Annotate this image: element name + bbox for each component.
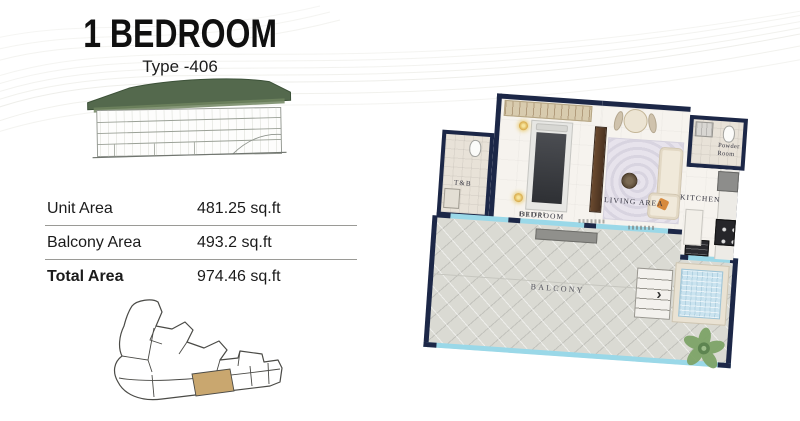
total-area-value: 974.46 sq.ft bbox=[197, 268, 357, 286]
pool-water bbox=[678, 269, 723, 320]
stove-icon bbox=[714, 219, 736, 246]
total-area-label: Total Area bbox=[47, 268, 197, 286]
building-illustration bbox=[84, 74, 296, 162]
pillow-icon bbox=[536, 123, 568, 132]
floorplate-key-plan bbox=[92, 296, 292, 416]
balcony-area-label: Balcony Area bbox=[47, 234, 197, 252]
area-table: Unit Area 481.25 sq.ft Balcony Area 493.… bbox=[45, 192, 357, 293]
area-row-unit: Unit Area 481.25 sq.ft bbox=[45, 192, 357, 226]
balcony-area-value: 493.2 sq.ft bbox=[197, 234, 357, 252]
page-title-text: 1 BEDROOM bbox=[83, 14, 277, 54]
area-row-total: Total Area 974.46 sq.ft bbox=[45, 260, 357, 293]
plunge-pool-icon bbox=[672, 262, 730, 326]
bed-icon bbox=[525, 120, 573, 213]
door-annotation-scribble bbox=[628, 225, 654, 229]
plant-icon bbox=[680, 325, 727, 372]
area-row-balcony: Balcony Area 493.2 sq.ft bbox=[45, 226, 357, 260]
unit-area-value: 481.25 sq.ft bbox=[197, 200, 357, 218]
duvet-icon bbox=[532, 132, 567, 204]
page-title: 1 BEDROOM bbox=[25, 14, 335, 54]
kitchen-island-icon bbox=[683, 209, 703, 246]
vanity-icon bbox=[443, 188, 460, 209]
unit-area-label: Unit Area bbox=[47, 200, 197, 218]
powder-room-label-line2: Room bbox=[717, 150, 735, 159]
unit-type-header: 1 BEDROOM Type -406 bbox=[25, 14, 335, 77]
keyplan-highlighted-unit bbox=[192, 369, 234, 396]
sink-icon bbox=[695, 121, 714, 137]
floor-plan-image: › BEDROOM LIVING AREA KITCHEN Powder Roo… bbox=[423, 81, 753, 374]
fridge-icon bbox=[717, 171, 739, 192]
